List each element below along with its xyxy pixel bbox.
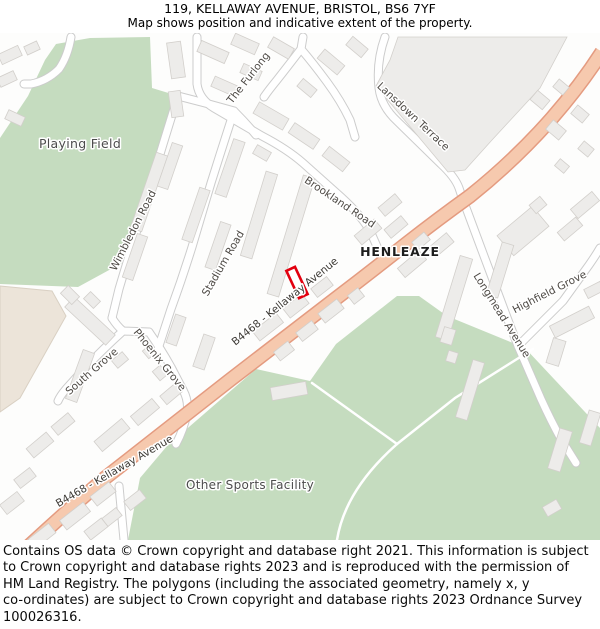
footer-line: 100026316. [3, 610, 599, 626]
page-title: 119, KELLAWAY AVENUE, BRISTOL, BS6 7YF [0, 0, 600, 16]
footer-line: to Crown copyright and database rights 2… [3, 560, 599, 576]
label-other-sports-facility: Other Sports Facility [186, 478, 314, 492]
page-subtitle: Map shows position and indicative extent… [0, 16, 600, 31]
footer-line: HM Land Registry. The polygons (includin… [3, 577, 599, 593]
label-playing-field: Playing Field [39, 136, 121, 151]
title-bar: 119, KELLAWAY AVENUE, BRISTOL, BS6 7YF M… [0, 0, 600, 33]
label-henleaze: HENLEAZE [360, 244, 440, 259]
copyright-footer: Contains OS data © Crown copyright and d… [0, 540, 599, 629]
footer-line: Contains OS data © Crown copyright and d… [3, 544, 599, 560]
footer-line: co-ordinates) are subject to Crown copyr… [3, 593, 599, 609]
map-canvas: Playing FieldOther Sports FacilityHENLEA… [0, 33, 600, 540]
map-svg: Playing FieldOther Sports FacilityHENLEA… [0, 33, 600, 540]
